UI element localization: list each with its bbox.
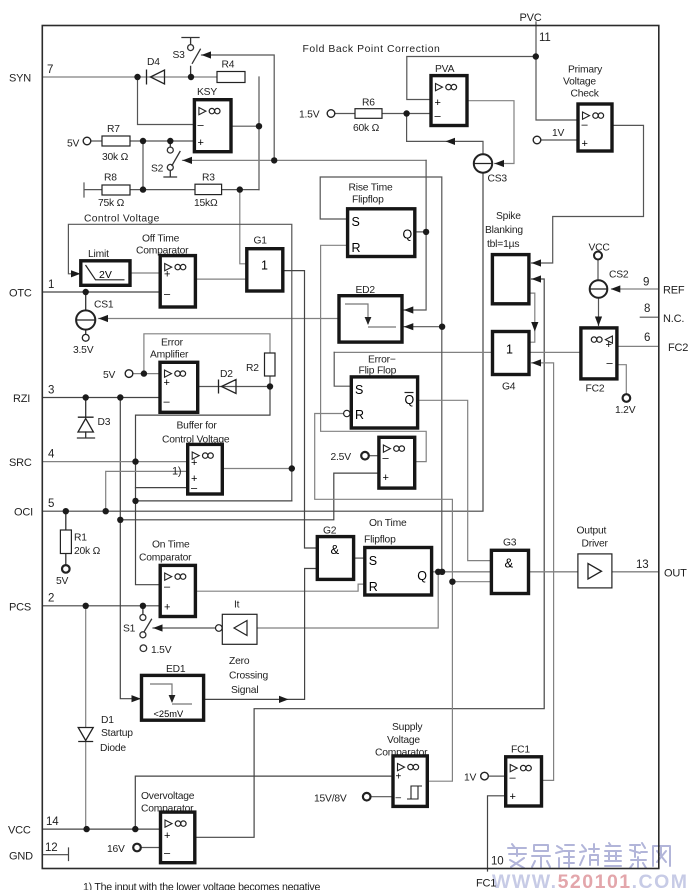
svg-text:R: R: [369, 580, 378, 594]
svg-text:Comparator: Comparator: [136, 246, 189, 257]
svg-text:Flipflop: Flipflop: [352, 195, 384, 206]
svg-text:Supply: Supply: [392, 722, 423, 733]
svg-text:Comparator: Comparator: [141, 804, 194, 815]
svg-text:Zero: Zero: [229, 656, 250, 667]
svg-text:–: –: [435, 111, 442, 123]
svg-text:+: +: [582, 138, 588, 150]
svg-text:CS3: CS3: [488, 174, 508, 185]
svg-text:&: &: [331, 542, 340, 557]
svg-text:GND: GND: [9, 851, 33, 863]
svg-text:OCI: OCI: [14, 507, 33, 519]
svg-text:WWW.520101.COM: WWW.520101.COM: [492, 871, 689, 890]
svg-text:PCS: PCS: [9, 602, 31, 614]
svg-text:5V: 5V: [56, 576, 69, 587]
svg-text:S2: S2: [151, 164, 164, 175]
svg-text:11: 11: [539, 32, 551, 44]
svg-text:Diode: Diode: [100, 743, 126, 754]
svg-text:60k Ω: 60k Ω: [353, 123, 380, 134]
svg-text:1): 1): [172, 466, 181, 478]
svg-text:+: +: [510, 791, 516, 803]
svg-text:16V: 16V: [107, 844, 125, 855]
svg-text:S1: S1: [123, 624, 136, 635]
svg-text:–: –: [607, 358, 614, 370]
svg-text:15kΩ: 15kΩ: [194, 198, 218, 209]
svg-text:1.5V: 1.5V: [299, 110, 320, 121]
svg-text:&: &: [505, 556, 514, 571]
svg-text:D4: D4: [147, 57, 160, 68]
svg-text:KSY: KSY: [197, 87, 217, 98]
svg-text:8: 8: [644, 303, 650, 315]
svg-text:G3: G3: [503, 538, 517, 549]
svg-text:Error: Error: [161, 338, 184, 349]
svg-text:–: –: [396, 793, 402, 804]
svg-text:+: +: [164, 830, 170, 842]
svg-text:1: 1: [48, 279, 54, 291]
svg-text:–: –: [383, 453, 390, 465]
svg-text:SYN: SYN: [9, 73, 31, 85]
svg-text:+: +: [606, 339, 612, 351]
svg-text:Control Voltage: Control Voltage: [162, 435, 230, 446]
svg-text:Startup: Startup: [101, 728, 133, 739]
svg-text:Rise Time: Rise Time: [349, 183, 393, 194]
svg-text:R8: R8: [104, 173, 117, 184]
svg-text:CS2: CS2: [609, 270, 629, 281]
svg-text:S: S: [369, 554, 377, 568]
svg-text:Off Time: Off Time: [142, 234, 180, 245]
svg-text:Crossing: Crossing: [229, 671, 269, 682]
svg-text:1V: 1V: [552, 128, 565, 139]
svg-text:2: 2: [48, 593, 54, 605]
svg-text:75k Ω: 75k Ω: [98, 198, 125, 209]
svg-text:Comparator: Comparator: [375, 748, 428, 759]
svg-text:+: +: [435, 97, 441, 109]
svg-text:20k Ω: 20k Ω: [74, 546, 101, 557]
svg-text:OUT: OUT: [664, 568, 687, 580]
svg-text:Spike: Spike: [496, 211, 521, 222]
svg-text:D1: D1: [101, 715, 114, 726]
svg-text:PVC: PVC: [520, 12, 542, 24]
svg-text:Overvoltage: Overvoltage: [141, 791, 195, 802]
svg-text:VCC: VCC: [589, 243, 611, 254]
svg-text:On Time: On Time: [152, 540, 190, 551]
svg-text:1: 1: [506, 343, 513, 357]
svg-text:REF: REF: [663, 285, 685, 297]
svg-text:Amplifier: Amplifier: [150, 350, 189, 361]
svg-text:G1: G1: [254, 236, 268, 247]
svg-text:G4: G4: [502, 382, 516, 393]
svg-text:FC1: FC1: [511, 745, 530, 756]
svg-text:15V/8V: 15V/8V: [314, 794, 347, 805]
svg-text:6: 6: [644, 332, 650, 344]
svg-text:ED1: ED1: [166, 664, 186, 675]
svg-text:Fold Back Point Correction: Fold Back Point Correction: [303, 44, 441, 55]
svg-text:Limit: Limit: [88, 249, 109, 260]
svg-text:14: 14: [46, 816, 59, 828]
svg-text:1V: 1V: [464, 773, 477, 784]
svg-text:1) The input with the lower vo: 1) The input with the lower voltage beco…: [83, 882, 320, 890]
svg-text:–: –: [164, 581, 171, 593]
svg-text:–: –: [164, 289, 171, 301]
svg-text:+: +: [164, 269, 170, 281]
svg-text:4: 4: [48, 449, 55, 461]
svg-text:S3: S3: [173, 50, 186, 61]
svg-text:1.2V: 1.2V: [615, 405, 636, 416]
svg-text:tbl=1µs: tbl=1µs: [487, 239, 519, 250]
svg-text:FC2: FC2: [668, 342, 688, 354]
svg-text:–: –: [510, 772, 517, 784]
svg-text:Blanking: Blanking: [485, 225, 523, 236]
svg-text:D3: D3: [98, 417, 111, 428]
svg-text:1.5V: 1.5V: [151, 645, 172, 656]
svg-text:FC1: FC1: [476, 878, 496, 890]
svg-text:3.5V: 3.5V: [73, 345, 94, 356]
svg-text:R: R: [355, 408, 364, 422]
svg-text:10: 10: [491, 856, 503, 868]
svg-text:Output: Output: [577, 526, 607, 537]
svg-text:Primary: Primary: [568, 65, 603, 76]
svg-text:Voltage: Voltage: [387, 735, 420, 746]
svg-text:1: 1: [261, 259, 268, 273]
svg-text:2V: 2V: [99, 269, 112, 281]
svg-text:Q: Q: [403, 228, 413, 242]
svg-text:CS1: CS1: [94, 300, 114, 311]
svg-text:R6: R6: [362, 98, 375, 109]
svg-text:R2: R2: [246, 363, 259, 374]
svg-text:Check: Check: [571, 89, 600, 100]
svg-text:It: It: [234, 600, 240, 611]
svg-text:Flip Flop: Flip Flop: [359, 366, 397, 377]
svg-text:–: –: [164, 396, 171, 408]
svg-text:–: –: [164, 848, 171, 860]
svg-text:VCC: VCC: [8, 825, 31, 837]
svg-text:R3: R3: [202, 173, 215, 184]
svg-text:5V: 5V: [67, 139, 80, 150]
svg-text:G2: G2: [323, 526, 337, 537]
svg-text:R4: R4: [222, 60, 235, 71]
svg-text:–: –: [582, 119, 589, 131]
svg-text:R: R: [352, 241, 361, 255]
svg-text:Flipflop: Flipflop: [364, 535, 396, 546]
svg-text:RZI: RZI: [13, 393, 30, 405]
svg-text:–: –: [198, 120, 205, 132]
svg-text:N.C.: N.C.: [663, 313, 684, 325]
svg-text:2.5V: 2.5V: [331, 452, 352, 463]
svg-text:Buffer for: Buffer for: [177, 421, 218, 432]
svg-text:+: +: [198, 137, 204, 149]
svg-text:PVA: PVA: [435, 64, 455, 75]
svg-text:Signal: Signal: [231, 685, 258, 696]
svg-text:7: 7: [47, 64, 53, 76]
svg-text:OTC: OTC: [9, 288, 32, 300]
svg-text:ED2: ED2: [356, 285, 376, 296]
svg-text:9: 9: [643, 277, 649, 289]
svg-text:Driver: Driver: [582, 539, 609, 550]
svg-text:R1: R1: [74, 533, 87, 544]
svg-text:+: +: [191, 457, 197, 469]
svg-text:S: S: [352, 215, 360, 229]
svg-text:5V: 5V: [103, 370, 116, 381]
svg-text:+: +: [164, 377, 170, 389]
svg-text:13: 13: [636, 559, 648, 571]
svg-text:+: +: [164, 602, 170, 614]
svg-text:Q: Q: [417, 569, 427, 583]
svg-text:S: S: [355, 383, 363, 397]
svg-text:Control Voltage: Control Voltage: [84, 214, 160, 225]
svg-text:R7: R7: [107, 124, 120, 135]
svg-text:Comparator: Comparator: [139, 553, 192, 564]
svg-text:–: –: [191, 483, 198, 495]
svg-text:Q: Q: [405, 393, 415, 407]
svg-text:On Time: On Time: [369, 518, 407, 529]
svg-text:SRC: SRC: [9, 457, 32, 469]
svg-text:D2: D2: [220, 369, 233, 380]
svg-text:FC2: FC2: [586, 384, 605, 395]
svg-text:Voltage: Voltage: [563, 77, 596, 88]
svg-text:3: 3: [48, 385, 54, 397]
svg-text:+: +: [396, 772, 402, 783]
svg-text:12: 12: [45, 842, 57, 854]
svg-text:Error−: Error−: [368, 355, 396, 366]
svg-text:+: +: [383, 472, 389, 484]
svg-text:30k Ω: 30k Ω: [102, 152, 129, 163]
svg-text:<25mV: <25mV: [154, 709, 185, 719]
svg-text:5: 5: [48, 498, 54, 510]
